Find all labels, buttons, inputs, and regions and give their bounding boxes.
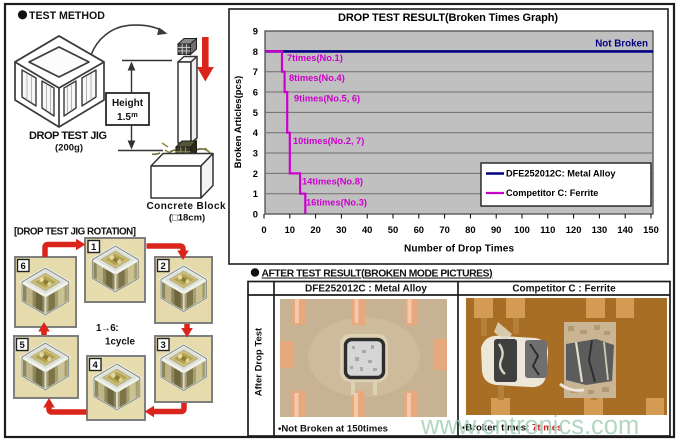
- svg-text:130: 130: [592, 224, 608, 235]
- svg-text:DFE252012C : Metal Alloy: DFE252012C : Metal Alloy: [305, 284, 427, 295]
- svg-text:m: m: [131, 110, 138, 119]
- svg-text:3: 3: [253, 148, 258, 159]
- svg-text:2: 2: [161, 261, 166, 272]
- svg-text:1→6:: 1→6:: [96, 323, 118, 334]
- svg-text:www.cntronics.com: www.cntronics.com: [420, 412, 639, 440]
- svg-text:DROP TEST JIG: DROP TEST JIG: [29, 130, 107, 142]
- svg-text:0: 0: [261, 224, 266, 235]
- svg-text:6: 6: [253, 87, 258, 98]
- svg-text:Competitor C : Ferrite: Competitor C : Ferrite: [512, 284, 616, 295]
- svg-text:14times(No.8): 14times(No.8): [302, 177, 363, 187]
- svg-text:80: 80: [465, 224, 475, 235]
- svg-text:0: 0: [253, 209, 258, 220]
- svg-text:9times(No.5, 6): 9times(No.5, 6): [294, 94, 360, 104]
- svg-text:110: 110: [540, 224, 555, 235]
- svg-text:1: 1: [253, 188, 258, 199]
- svg-text:9: 9: [253, 26, 258, 37]
- svg-text:40: 40: [362, 224, 372, 235]
- svg-text:6: 6: [21, 261, 26, 272]
- svg-text:Height: Height: [112, 98, 144, 109]
- svg-text:DFE252012C: Metal Alloy: DFE252012C: Metal Alloy: [506, 169, 616, 179]
- svg-text:[DROP TEST JIG ROTATION]: [DROP TEST JIG ROTATION]: [14, 227, 136, 238]
- svg-text:50: 50: [388, 224, 398, 235]
- svg-text:8times(No.4): 8times(No.4): [289, 73, 345, 83]
- svg-text:90: 90: [491, 224, 501, 235]
- svg-text:120: 120: [566, 224, 582, 235]
- svg-text:2: 2: [253, 168, 258, 179]
- svg-text:1: 1: [91, 242, 97, 253]
- svg-text:4: 4: [253, 127, 259, 138]
- svg-text:DROP TEST RESULT(Broken Times: DROP TEST RESULT(Broken Times Graph): [338, 12, 558, 24]
- svg-text:Competitor C: Ferrite: Competitor C: Ferrite: [506, 188, 598, 198]
- svg-text:Broken Articles(pcs): Broken Articles(pcs): [233, 76, 244, 169]
- svg-text:TEST METHOD: TEST METHOD: [29, 10, 105, 22]
- svg-text:150: 150: [643, 224, 659, 235]
- svg-text:60: 60: [414, 224, 424, 235]
- svg-text:After Drop Test: After Drop Test: [254, 327, 265, 396]
- svg-text:5: 5: [20, 340, 26, 351]
- svg-text:Number of Drop Times: Number of Drop Times: [404, 244, 514, 255]
- svg-text:20: 20: [310, 224, 320, 235]
- svg-text:16times(No.3): 16times(No.3): [306, 198, 367, 208]
- svg-text:7times(No.1): 7times(No.1): [287, 53, 343, 63]
- svg-text:70: 70: [439, 224, 449, 235]
- svg-text:(200g): (200g): [55, 143, 83, 154]
- svg-text:100: 100: [514, 224, 530, 235]
- svg-text:7: 7: [253, 66, 258, 77]
- svg-text:10times(No.2, 7): 10times(No.2, 7): [293, 136, 364, 146]
- svg-text:Not Broken: Not Broken: [595, 39, 648, 50]
- svg-text:30: 30: [336, 224, 346, 235]
- svg-text:(□18cm): (□18cm): [169, 213, 205, 224]
- svg-text:Concrete Block: Concrete Block: [147, 201, 226, 212]
- svg-text:1.5: 1.5: [117, 112, 131, 123]
- svg-text:AFTER TEST RESULT(BROKEN MODE: AFTER TEST RESULT(BROKEN MODE PICTURES): [262, 269, 493, 280]
- svg-text:8: 8: [253, 46, 258, 57]
- svg-text:5: 5: [253, 107, 258, 118]
- svg-text:1cycle: 1cycle: [105, 337, 136, 348]
- svg-text:3: 3: [161, 340, 166, 351]
- svg-text:10: 10: [285, 224, 295, 235]
- svg-text:4: 4: [93, 360, 99, 371]
- svg-text:•Not Broken at 150times: •Not Broken at 150times: [278, 424, 388, 435]
- svg-text:140: 140: [617, 224, 633, 235]
